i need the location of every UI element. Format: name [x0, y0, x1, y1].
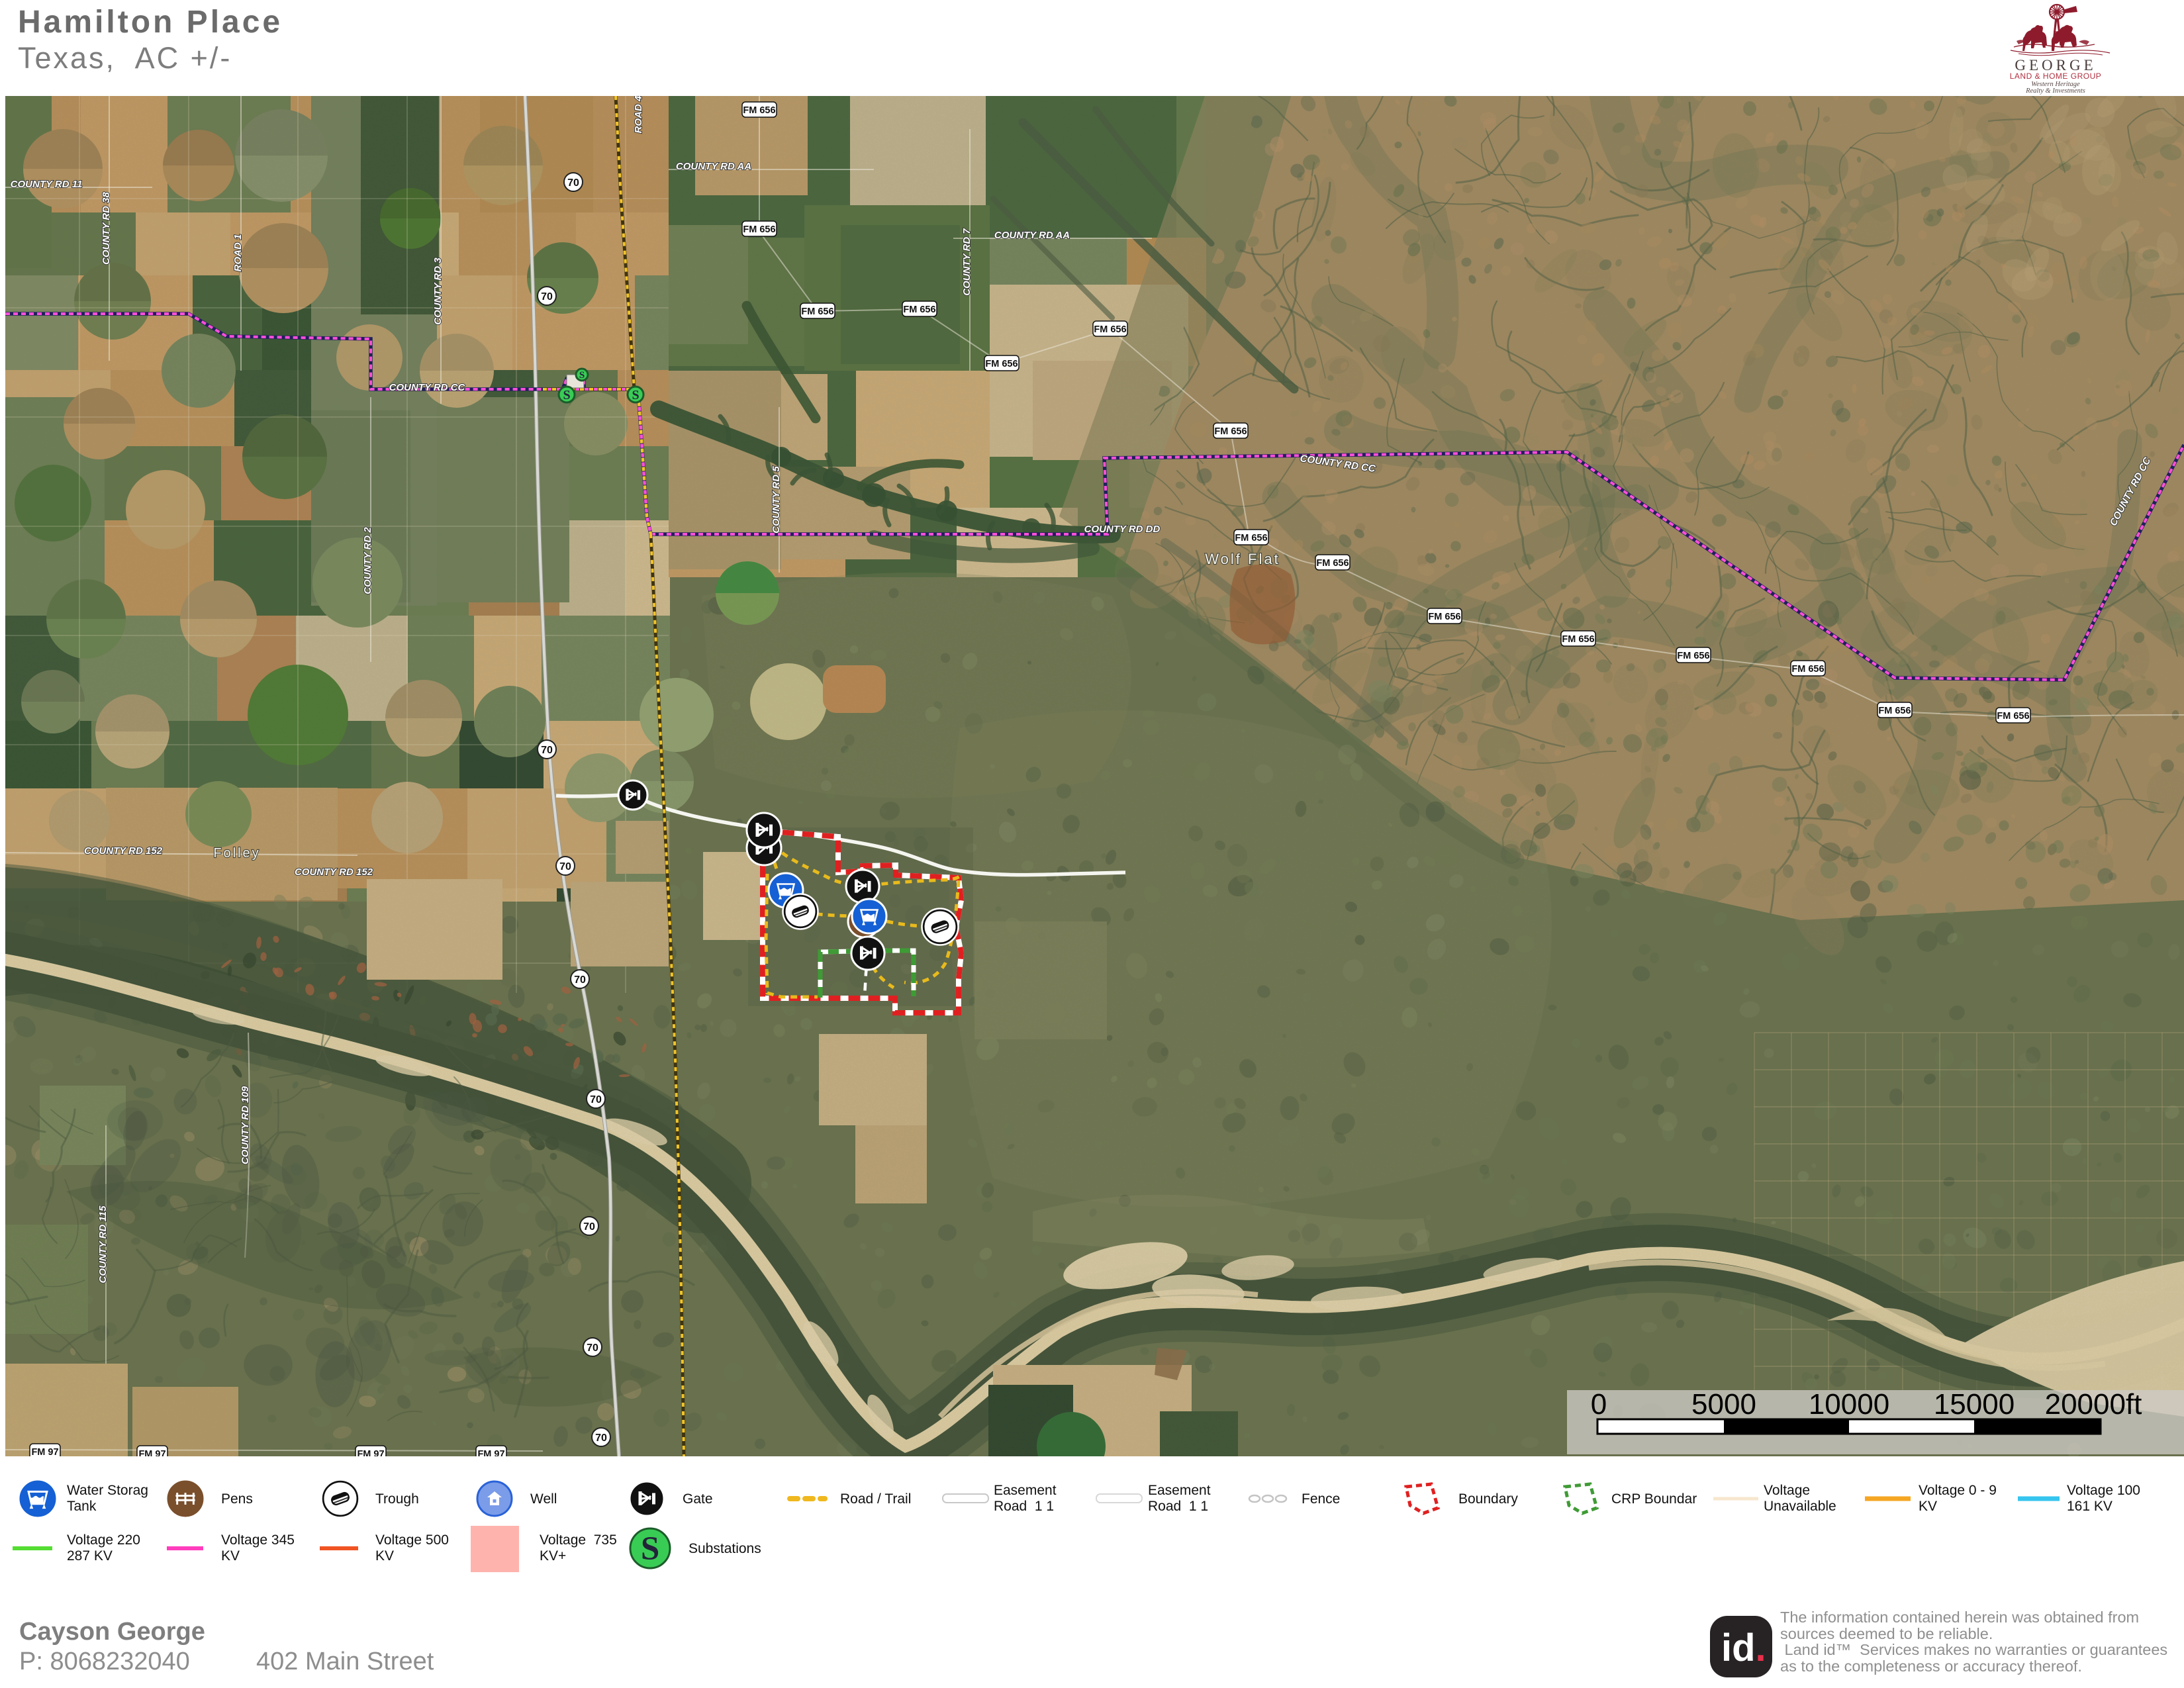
- svg-text:COUNTY RD 115: COUNTY RD 115: [97, 1205, 109, 1284]
- svg-text:FM 656: FM 656: [801, 306, 833, 317]
- svg-text:FM 656: FM 656: [985, 359, 1018, 369]
- svg-text:15000: 15000: [1934, 1388, 2015, 1421]
- svg-text:Voltage 100: Voltage 100: [2067, 1483, 2140, 1498]
- svg-text:Voltage: Voltage: [1764, 1483, 1810, 1498]
- svg-text:70: 70: [559, 861, 571, 872]
- svg-text:FM 656: FM 656: [743, 105, 775, 116]
- svg-text:COUNTY RD DD: COUNTY RD DD: [1084, 524, 1161, 535]
- svg-text:161 KV: 161 KV: [2067, 1499, 2113, 1514]
- svg-text:CRP Boundar: CRP Boundar: [1611, 1491, 1697, 1507]
- svg-text:FM 656: FM 656: [1094, 324, 1126, 335]
- svg-text:COUNTY RD 7: COUNTY RD 7: [961, 228, 973, 296]
- svg-text:Boundary: Boundary: [1458, 1491, 1518, 1507]
- svg-text:Folley: Folley: [213, 846, 260, 861]
- svg-text:Well: Well: [530, 1491, 557, 1507]
- svg-text:Road 1 1: Road 1 1: [1148, 1499, 1208, 1514]
- svg-text:COUNTY RD 11: COUNTY RD 11: [11, 179, 83, 190]
- svg-text:Road 1 1: Road 1 1: [994, 1499, 1054, 1514]
- svg-text:FM 656: FM 656: [1428, 612, 1460, 622]
- svg-text:Substations: Substations: [688, 1541, 761, 1556]
- svg-text:Wolf Flat: Wolf Flat: [1205, 551, 1280, 567]
- svg-text:COUNTY RD 152: COUNTY RD 152: [84, 845, 163, 857]
- svg-text:COUNTY RD 3: COUNTY RD 3: [432, 258, 444, 325]
- svg-text:Easement: Easement: [1148, 1483, 1211, 1498]
- svg-text:70: 70: [590, 1094, 602, 1105]
- svg-text:Road / Trail: Road / Trail: [840, 1491, 911, 1507]
- svg-text:FM 656: FM 656: [743, 224, 775, 235]
- svg-text:COUNTY RD 5: COUNTY RD 5: [771, 466, 782, 534]
- svg-text:S: S: [632, 388, 639, 402]
- svg-text:FM 656: FM 656: [1562, 634, 1594, 645]
- svg-text:70: 70: [574, 974, 586, 986]
- svg-text:Gate: Gate: [683, 1491, 713, 1507]
- svg-text:70: 70: [583, 1221, 595, 1233]
- svg-text:Trough: Trough: [375, 1491, 419, 1507]
- svg-text:COUNTY RD 38: COUNTY RD 38: [101, 191, 112, 264]
- svg-text:70: 70: [541, 745, 553, 756]
- svg-text:Voltage 735: Voltage 735: [540, 1532, 617, 1548]
- svg-text:FM 656: FM 656: [1235, 533, 1267, 543]
- svg-text:COUNTY RD AA: COUNTY RD AA: [676, 161, 751, 172]
- svg-text:70: 70: [567, 177, 579, 189]
- svg-text:20000ft: 20000ft: [2045, 1388, 2142, 1421]
- svg-text:70: 70: [595, 1432, 607, 1444]
- svg-text:FM 656: FM 656: [1316, 558, 1349, 569]
- svg-text:5000: 5000: [1691, 1388, 1756, 1421]
- svg-text:10000: 10000: [1809, 1388, 1889, 1421]
- svg-text:Tank: Tank: [67, 1499, 97, 1514]
- svg-text:KV+: KV+: [540, 1548, 566, 1564]
- svg-text:Easement: Easement: [994, 1483, 1057, 1498]
- svg-text:ROAD 1: ROAD 1: [232, 234, 244, 272]
- svg-text:COUNTY RD 152: COUNTY RD 152: [295, 867, 373, 878]
- svg-text:Voltage 500: Voltage 500: [375, 1532, 449, 1548]
- svg-text:Fence: Fence: [1302, 1491, 1340, 1507]
- svg-text:S: S: [641, 1530, 659, 1568]
- svg-text:287 KV: 287 KV: [67, 1548, 113, 1564]
- svg-text:FM 656: FM 656: [1677, 651, 1709, 661]
- svg-text:FM 656: FM 656: [1997, 711, 2029, 722]
- svg-text:COUNTY RD 109: COUNTY RD 109: [240, 1086, 251, 1164]
- svg-text:Pens: Pens: [221, 1491, 253, 1507]
- svg-text:COUNTY RD 2: COUNTY RD 2: [362, 527, 373, 594]
- svg-text:ROAD 4: ROAD 4: [633, 95, 644, 133]
- svg-text:Unavailable: Unavailable: [1764, 1499, 1836, 1514]
- svg-text:COUNTY RD CC: COUNTY RD CC: [389, 382, 466, 393]
- svg-text:FM 656: FM 656: [903, 305, 935, 315]
- svg-text:COUNTY RD AA: COUNTY RD AA: [994, 230, 1070, 241]
- svg-text:S: S: [579, 370, 585, 381]
- svg-text:Water Storag: Water Storag: [67, 1483, 148, 1498]
- svg-text:FM 656: FM 656: [1791, 664, 1824, 675]
- svg-text:0: 0: [1591, 1388, 1607, 1421]
- svg-text:KV: KV: [221, 1548, 240, 1564]
- svg-text:Voltage 220: Voltage 220: [67, 1532, 140, 1548]
- svg-text:70: 70: [587, 1342, 598, 1354]
- svg-text:KV: KV: [1919, 1499, 1937, 1514]
- svg-text:FM 656: FM 656: [1214, 426, 1247, 437]
- svg-text:Voltage 345: Voltage 345: [221, 1532, 295, 1548]
- svg-text:70: 70: [541, 291, 553, 303]
- svg-text:FM 656: FM 656: [1878, 706, 1911, 716]
- svg-text:S: S: [563, 388, 570, 402]
- svg-text:KV: KV: [375, 1548, 394, 1564]
- svg-text:Voltage 0 - 9: Voltage 0 - 9: [1919, 1483, 1997, 1498]
